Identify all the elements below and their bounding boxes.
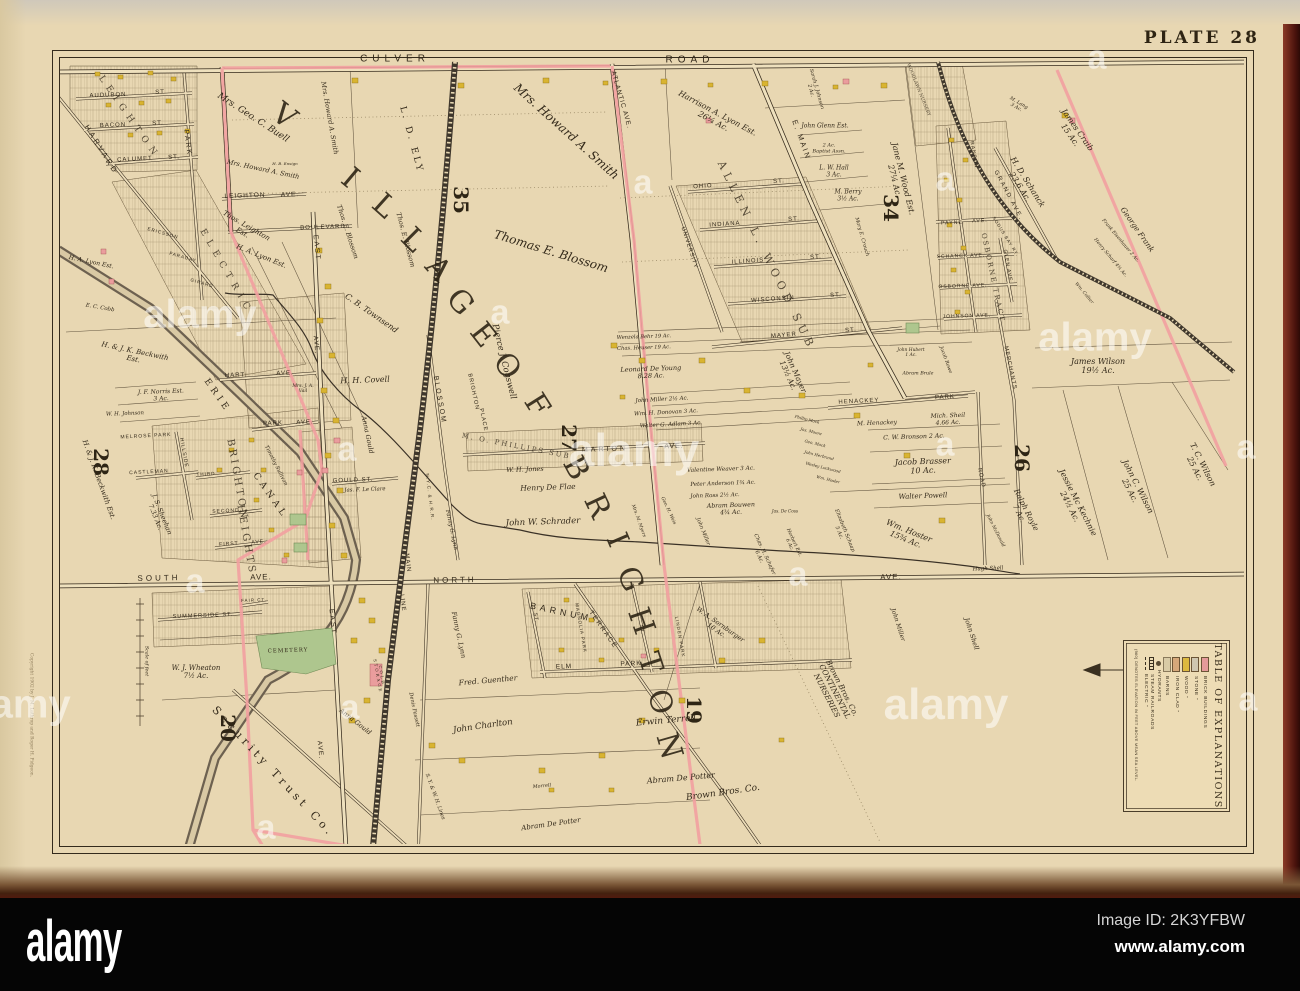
legend-item: BARNS xyxy=(1163,657,1171,809)
legend-item: ELECTRIC ” xyxy=(1143,657,1148,809)
legend-note: (960) DENOTES ELEVATION IN FEET ABOVE ME… xyxy=(1134,649,1139,809)
plate-number: PLATE 28 xyxy=(1130,28,1260,48)
legend-item-label: BARNS xyxy=(1164,676,1169,696)
alamy-logo: alamy xyxy=(26,908,122,975)
electric-swatch-icon xyxy=(1145,657,1146,670)
scanned-atlas-photo: PLATE 28 xyxy=(0,0,1300,991)
legend-title: TABLE OF EXPLANATIONS xyxy=(1212,643,1223,809)
legend-item-label: IRON CLAD ” xyxy=(1174,676,1179,713)
legend-item-label: WOOD ” xyxy=(1183,676,1188,699)
stone-swatch-icon xyxy=(1191,657,1199,672)
legend-rows: BRICK BUILDINGSSTONE ”WOOD ”IRON CLAD ”B… xyxy=(1143,643,1209,809)
legend-item-label: BRICK BUILDINGS xyxy=(1203,676,1208,728)
scale-bar xyxy=(136,598,144,726)
hydrant-swatch-icon xyxy=(1156,661,1161,666)
iron-swatch-icon xyxy=(1172,657,1180,672)
photo-top-edge xyxy=(0,0,1300,26)
page-left-edge xyxy=(0,0,26,900)
wood-swatch-icon xyxy=(1182,657,1190,672)
legend-item: STEAM RAILROADS xyxy=(1149,657,1154,809)
page-bottom-shadow xyxy=(0,866,1300,900)
legend-item-label: ELECTRIC ” xyxy=(1143,674,1148,708)
book-spine-edge xyxy=(1283,24,1300,900)
steam-swatch-icon xyxy=(1149,657,1154,670)
legend-item: BRICK BUILDINGS xyxy=(1201,657,1209,809)
barn-swatch-icon xyxy=(1163,657,1171,672)
map-drawing xyxy=(0,0,1300,991)
image-id: Image ID: 2K3YFBW xyxy=(1097,912,1246,930)
legend-item: IRON CLAD ” xyxy=(1172,657,1180,809)
legend-item: STONE ” xyxy=(1191,657,1199,809)
brick-swatch-icon xyxy=(1201,657,1209,672)
legend-box: TABLE OF EXPLANATIONS BRICK BUILDINGSSTO… xyxy=(1123,640,1230,812)
legend-item-label: STEAM RAILROADS xyxy=(1149,674,1154,730)
legend-item: WOOD ” xyxy=(1182,657,1190,809)
legend-item-label: HYDRANTS xyxy=(1156,670,1161,702)
alamy-url: www.alamy.com xyxy=(1097,937,1246,957)
legend-item: HYDRANTS xyxy=(1156,657,1161,809)
legend-item-label: STONE ” xyxy=(1193,676,1198,700)
